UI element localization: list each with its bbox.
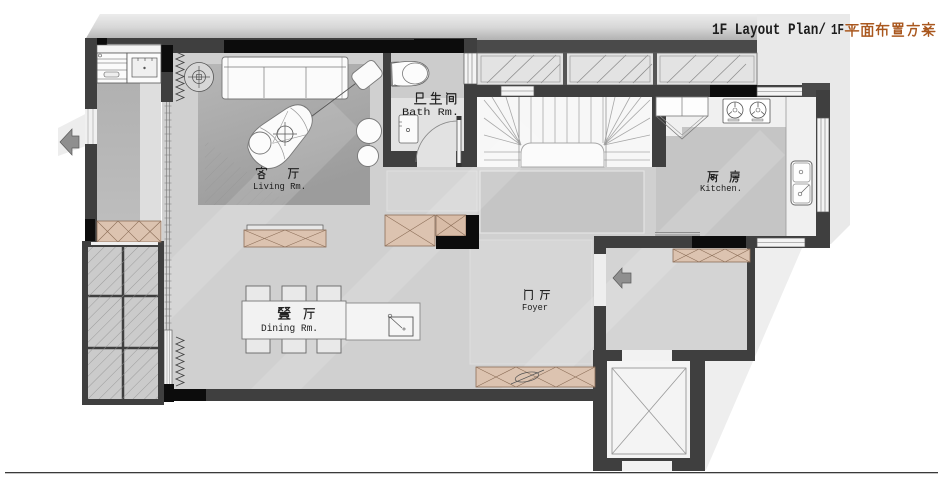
svg-text:Foyer: Foyer (522, 302, 548, 313)
svg-text:Living Rm.: Living Rm. (253, 181, 306, 192)
svg-text:1F: 1F (831, 22, 844, 39)
svg-text:1F Layout Plan/: 1F Layout Plan/ (712, 21, 826, 39)
svg-text:Dining Rm.: Dining Rm. (261, 323, 318, 335)
svg-text:Kitchen.: Kitchen. (700, 183, 742, 194)
svg-text:Bath Rm.: Bath Rm. (402, 107, 459, 119)
